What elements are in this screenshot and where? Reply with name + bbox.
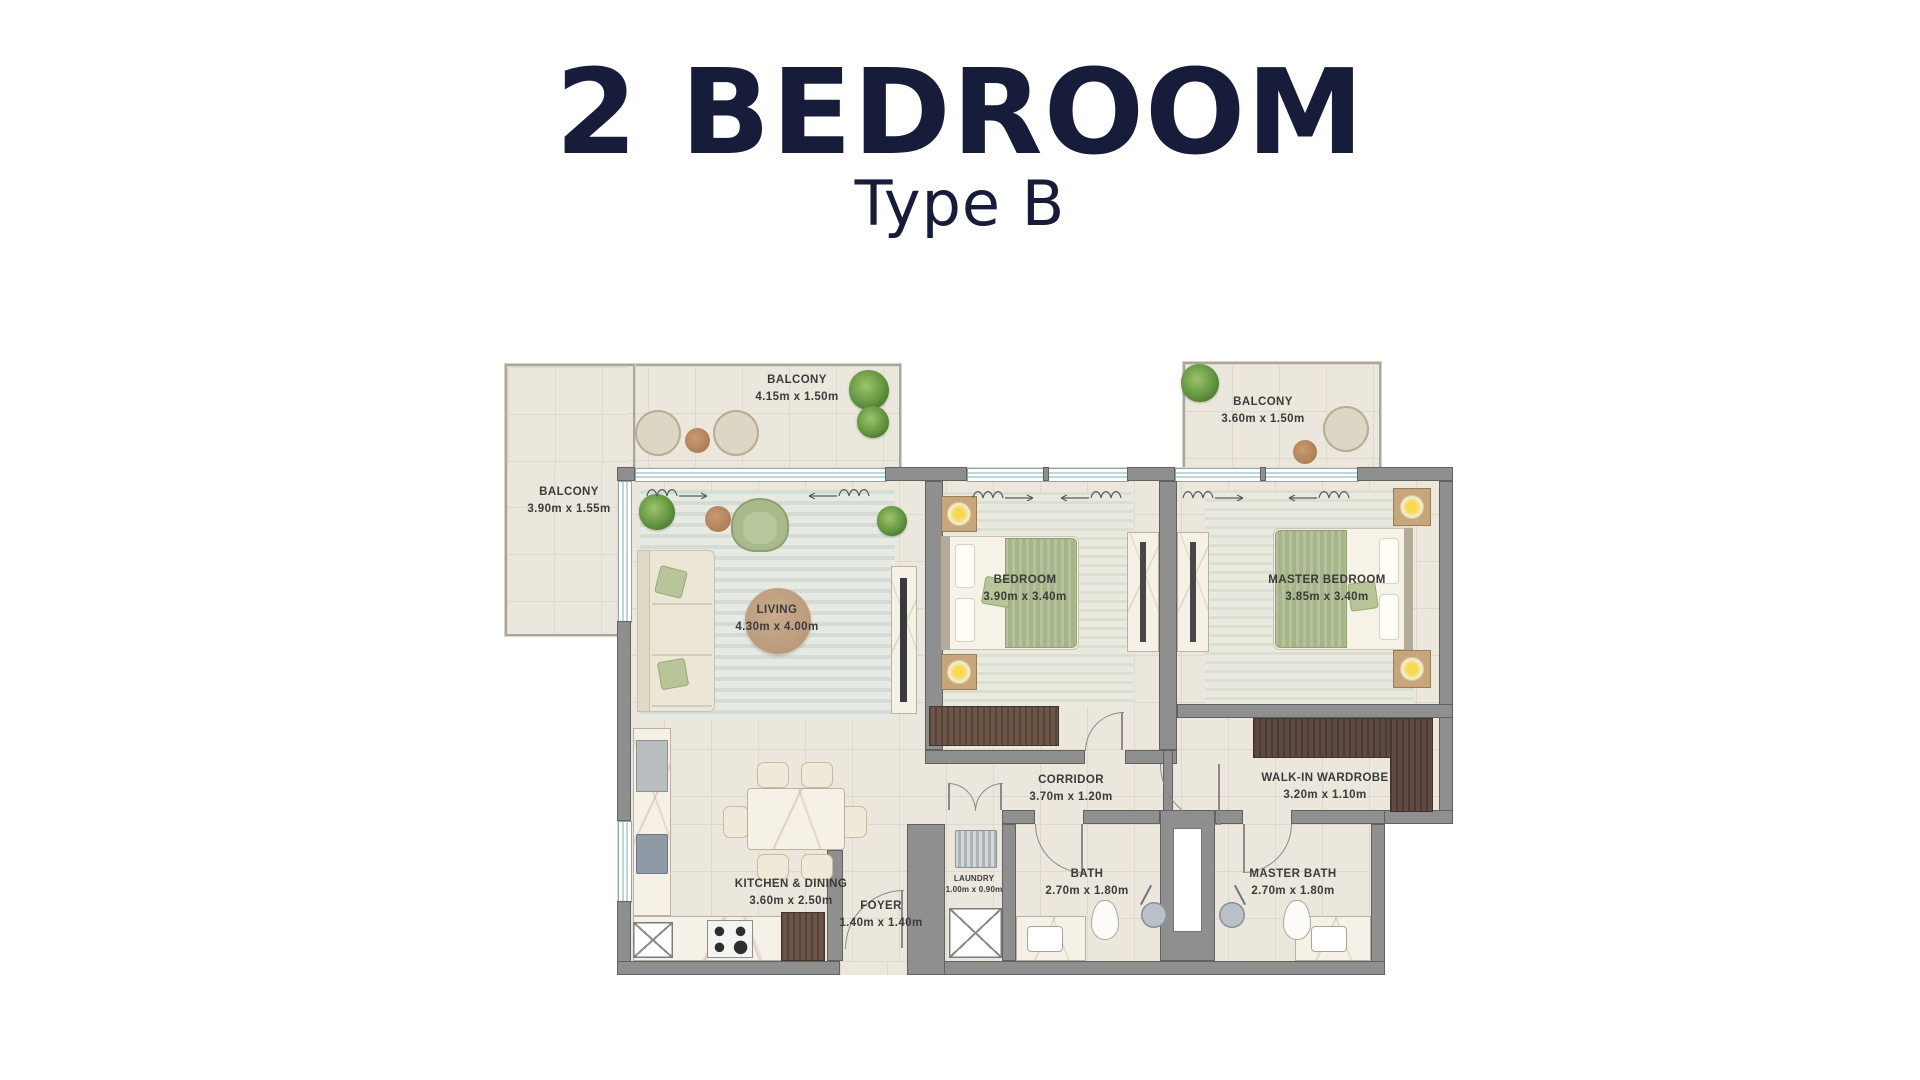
- door-leaf: [1218, 764, 1220, 824]
- room-dims: 1.40m x 1.40m: [821, 915, 941, 932]
- room-name: BALCONY: [1183, 394, 1343, 411]
- sofa-pillow: [657, 658, 689, 690]
- curtain-icon: [805, 485, 871, 499]
- washing-machine: [955, 830, 997, 868]
- tv-icon: [900, 578, 907, 702]
- floor-plan: BALCONY 4.15m x 1.50m BALCONY 3.90m x 1.…: [505, 360, 1455, 978]
- lamp-icon: [947, 660, 971, 684]
- wall: [1371, 824, 1385, 975]
- lamp-icon: [1400, 657, 1424, 681]
- room-label-master-bedroom: MASTER BEDROOM 3.85m x 3.40m: [1227, 572, 1427, 605]
- wall: [1002, 810, 1035, 824]
- wardrobe-rail-icon: [1140, 542, 1146, 642]
- room-dims: 3.60m x 1.50m: [1183, 411, 1343, 428]
- door-leaf: [1121, 712, 1123, 750]
- bath-basin: [1027, 926, 1063, 952]
- room-name: BATH: [1017, 866, 1157, 883]
- dining-chair: [723, 806, 749, 838]
- shaft: [633, 922, 673, 958]
- wall: [925, 750, 1085, 764]
- room-dims: 4.15m x 1.50m: [717, 389, 877, 406]
- door-leaf: [1081, 824, 1083, 872]
- dining-chair: [757, 762, 789, 788]
- curtain-icon: [1181, 487, 1247, 501]
- wall: [617, 467, 635, 481]
- plant-icon: [877, 506, 907, 536]
- armchair-seat: [743, 512, 777, 544]
- shaft: [949, 908, 1002, 958]
- door-leaf: [1243, 824, 1245, 872]
- room-name: FOYER: [821, 898, 941, 915]
- wall: [1439, 481, 1453, 824]
- stove: [707, 920, 753, 958]
- curtain-icon: [1285, 487, 1351, 501]
- window: [635, 468, 887, 482]
- room-label-foyer: FOYER 1.40m x 1.40m: [821, 898, 941, 931]
- room-name: KITCHEN & DINING: [701, 876, 881, 893]
- room-name: LIVING: [697, 602, 857, 619]
- room-dims: 3.90m x 3.40m: [935, 589, 1115, 606]
- wall: [1260, 467, 1266, 481]
- sofa-backrest: [637, 550, 650, 712]
- room-label-balcony-top: BALCONY 4.15m x 1.50m: [717, 372, 877, 405]
- dining-table: [747, 788, 845, 850]
- plan-subtitle: Type B: [0, 170, 1920, 238]
- shower-head-icon: [1141, 902, 1167, 928]
- shower-head-icon: [1219, 902, 1245, 928]
- room-label-walk-in-wardrobe: WALK-IN WARDROBE 3.20m x 1.10m: [1225, 770, 1425, 803]
- bedroom-dresser: [929, 706, 1059, 746]
- room-label-bath: BATH 2.70m x 1.80m: [1017, 866, 1157, 899]
- balcony-corner-patch: [508, 367, 628, 465]
- balcony-armchair: [713, 410, 759, 456]
- kitchen-sink: [636, 834, 668, 874]
- wall: [1083, 810, 1160, 824]
- wall: [907, 961, 1385, 975]
- room-name: BEDROOM: [935, 572, 1115, 589]
- wall: [1159, 481, 1177, 750]
- title-block: 2 BEDROOM Type B: [0, 0, 1920, 238]
- balcony-side-table: [685, 428, 710, 453]
- balcony-armchair: [635, 410, 681, 456]
- curtain-icon: [1057, 487, 1123, 501]
- side-table: [705, 506, 731, 532]
- wardrobe-rail-icon: [1190, 542, 1196, 642]
- duct: [1173, 828, 1202, 932]
- toilet: [1091, 900, 1119, 940]
- plan-title: 2 BEDROOM: [0, 48, 1920, 178]
- room-dims: 1.00m x 0.90m: [935, 885, 1013, 896]
- room-dims: 3.70m x 1.20m: [991, 789, 1151, 806]
- room-label-balcony-right: BALCONY 3.60m x 1.50m: [1183, 394, 1343, 427]
- wall: [1177, 704, 1453, 718]
- bath-basin: [1311, 926, 1347, 952]
- fridge: [636, 740, 668, 792]
- room-name: BALCONY: [505, 484, 633, 501]
- room-label-master-bath: MASTER BATH 2.70m x 1.80m: [1213, 866, 1373, 899]
- room-label-balcony-left: BALCONY 3.90m x 1.55m: [505, 484, 633, 517]
- plant-icon: [857, 406, 889, 438]
- dining-chair: [801, 762, 833, 788]
- kitchen-cabinet: [781, 912, 825, 961]
- room-label-laundry: LAUNDRY 1.00m x 0.90m: [935, 874, 1013, 896]
- lamp-icon: [1400, 495, 1424, 519]
- room-name: CORRIDOR: [991, 772, 1151, 789]
- room-label-bedroom: BEDROOM 3.90m x 3.40m: [935, 572, 1115, 605]
- wall: [1043, 467, 1049, 481]
- door-leaf: [948, 783, 950, 810]
- room-name: BALCONY: [717, 372, 877, 389]
- room-label-corridor: CORRIDOR 3.70m x 1.20m: [991, 772, 1151, 805]
- page: 2 BEDROOM Type B: [0, 0, 1920, 1080]
- wall: [1291, 810, 1385, 824]
- window: [618, 821, 632, 903]
- plant-icon: [639, 494, 675, 530]
- toilet: [1283, 900, 1311, 940]
- room-dims: 2.70m x 1.80m: [1213, 883, 1373, 900]
- window: [1175, 468, 1359, 482]
- room-dims: 3.20m x 1.10m: [1225, 787, 1425, 804]
- wall: [617, 621, 631, 821]
- lamp-icon: [947, 502, 971, 526]
- room-name: MASTER BATH: [1213, 866, 1373, 883]
- room-dims: 3.90m x 1.55m: [505, 501, 633, 518]
- room-name: WALK-IN WARDROBE: [1225, 770, 1425, 787]
- room-name: LAUNDRY: [935, 874, 1013, 885]
- room-dims: 3.85m x 3.40m: [1227, 589, 1427, 606]
- room-name: MASTER BEDROOM: [1227, 572, 1427, 589]
- balcony-side-table: [1293, 440, 1317, 464]
- room-label-living: LIVING 4.30m x 4.00m: [697, 602, 857, 635]
- curtain-icon: [645, 485, 711, 499]
- curtain-icon: [971, 487, 1037, 501]
- room-dims: 4.30m x 4.00m: [697, 619, 857, 636]
- wall: [617, 961, 840, 975]
- room-dims: 2.70m x 1.80m: [1017, 883, 1157, 900]
- wall: [1127, 467, 1175, 481]
- entrance-threshold: [840, 961, 907, 975]
- wall: [1357, 467, 1453, 481]
- wall: [885, 467, 967, 481]
